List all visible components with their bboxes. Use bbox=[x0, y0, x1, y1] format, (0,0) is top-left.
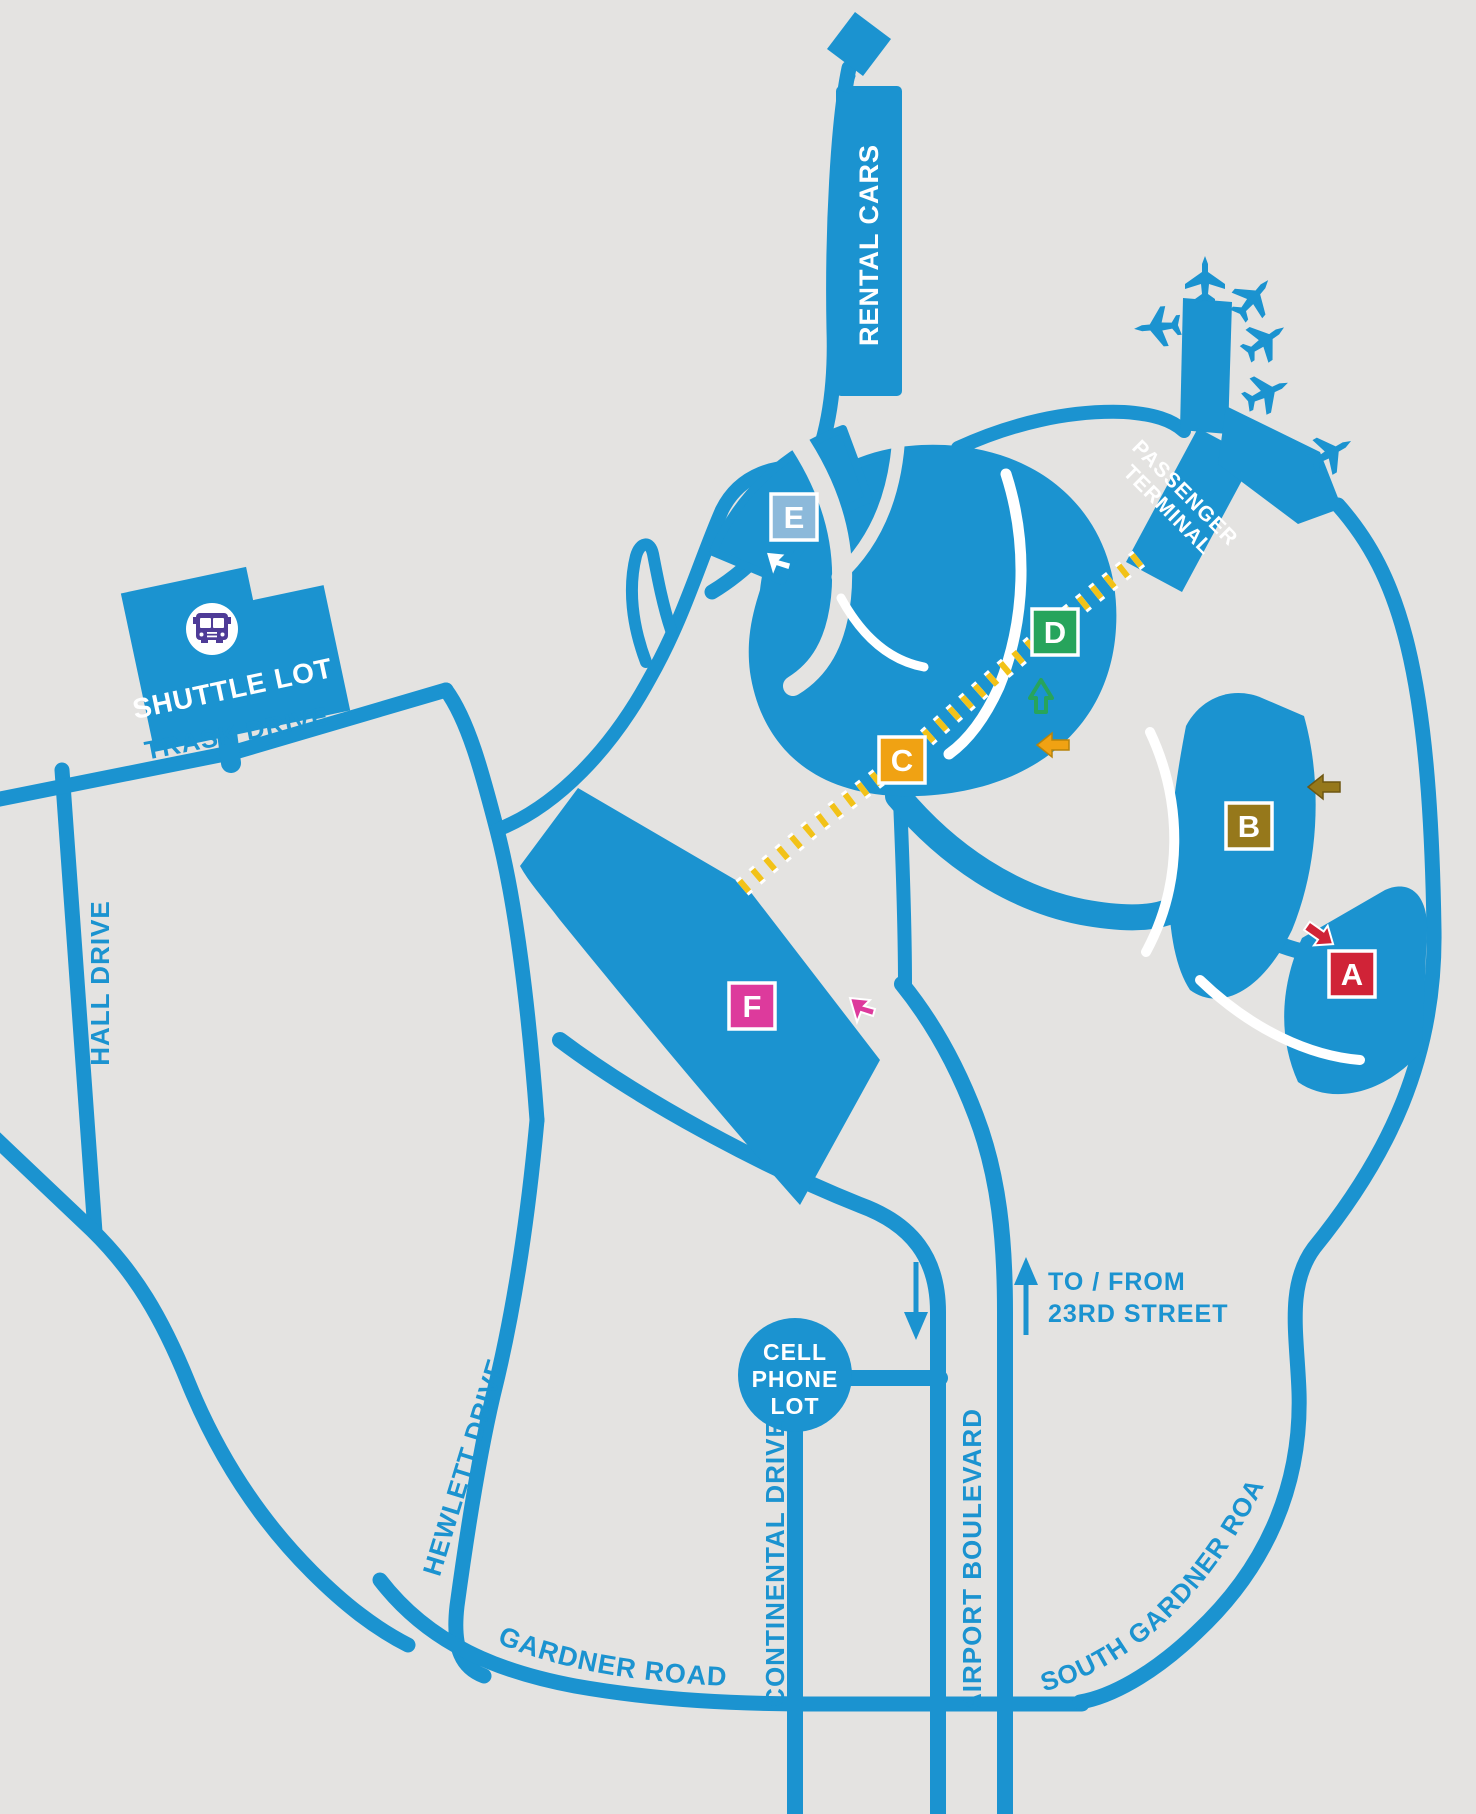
airport-map: A B C D E F RENTAL bbox=[0, 0, 1476, 1814]
cell-lot-line1: CELL bbox=[763, 1339, 827, 1365]
cell-lot-line2: PHONE bbox=[752, 1366, 839, 1392]
street-note-line1: TO / FROM bbox=[1048, 1268, 1186, 1296]
lot-d-letter: D bbox=[1044, 615, 1066, 650]
map-canvas: A B C D E F RENTAL bbox=[0, 0, 1476, 1814]
lot-b-letter: B bbox=[1238, 809, 1260, 844]
lot-a-letter: A bbox=[1341, 957, 1363, 992]
terminal-pier bbox=[1180, 298, 1232, 434]
cell-lot-line3: LOT bbox=[771, 1393, 820, 1419]
hall-drive-label: HALL DRIVE bbox=[85, 900, 115, 1066]
bus-icon bbox=[186, 603, 238, 655]
road-interchange-link bbox=[900, 800, 905, 985]
rental-diamond-stem bbox=[845, 74, 851, 92]
rental-cars-label: RENTAL CARS bbox=[854, 144, 884, 346]
lot-c-letter: C bbox=[891, 743, 913, 778]
lot-e-letter: E bbox=[784, 500, 805, 535]
airport-boulevard-label: AIRPORT BOULEVARD bbox=[957, 1408, 987, 1712]
continental-drive-label: CONTINENTAL DRIVE bbox=[760, 1419, 790, 1707]
street-note-line2: 23RD STREET bbox=[1048, 1300, 1228, 1328]
lot-f-letter: F bbox=[743, 989, 762, 1024]
